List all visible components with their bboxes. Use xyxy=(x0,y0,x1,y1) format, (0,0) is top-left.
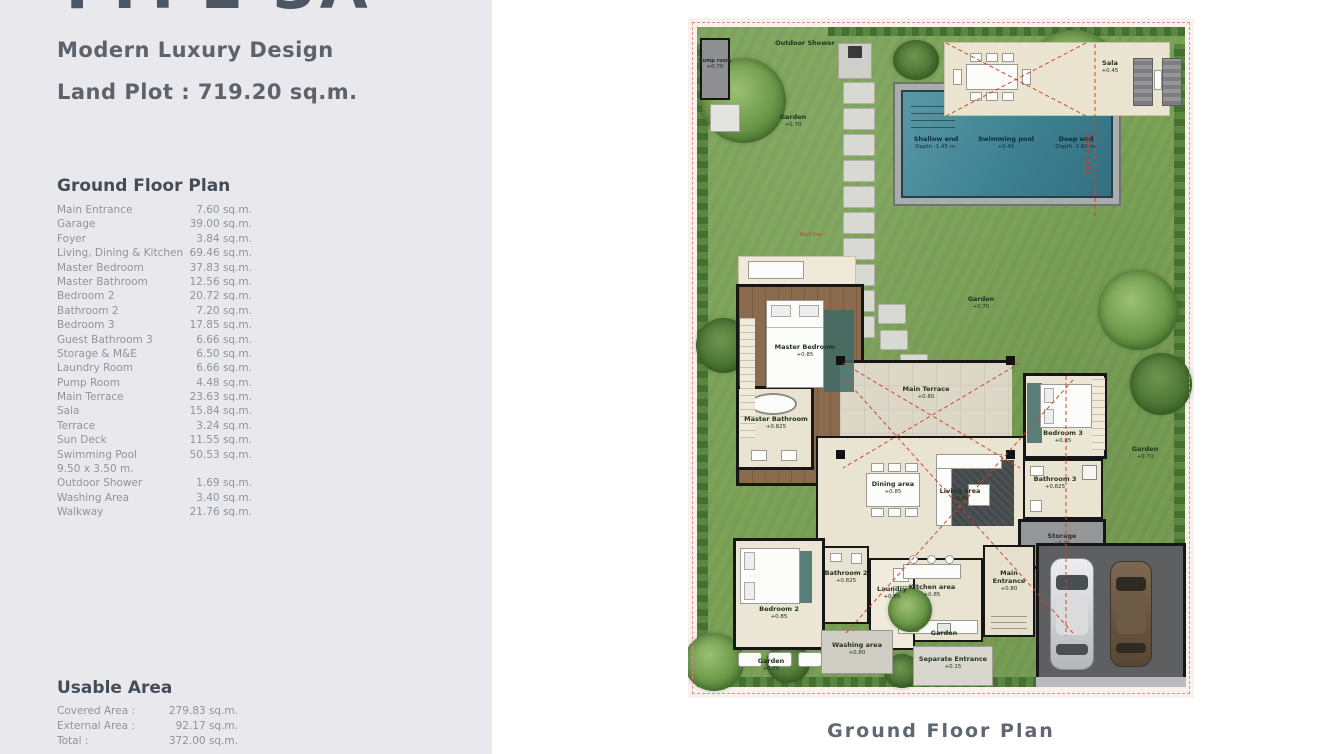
bathtub xyxy=(749,393,797,415)
kitchen-island xyxy=(903,564,961,579)
walkway-stone xyxy=(843,82,875,104)
shower xyxy=(1082,465,1097,480)
walkway-stone xyxy=(880,330,908,350)
chair xyxy=(986,53,998,62)
room-row: Storage & M&E6.50 sq.m. xyxy=(57,347,252,361)
stool xyxy=(909,555,918,564)
land-plot-size: Land Plot : 719.20 sq.m. xyxy=(57,80,358,104)
room-row: Washing Area3.40 sq.m. xyxy=(57,491,252,505)
room-area-list: Main Entrance7.60 sq.m. Garage39.00 sq.m… xyxy=(57,203,252,520)
driveway xyxy=(1036,677,1186,687)
usable-row: Covered Area :279.83 sq.m. xyxy=(57,704,238,719)
sala-dining-table xyxy=(966,64,1018,90)
toilet xyxy=(851,553,862,564)
chair xyxy=(905,463,918,472)
tree xyxy=(1130,353,1192,415)
walkway-stone xyxy=(843,212,875,234)
chair xyxy=(970,92,982,101)
walkway-stone xyxy=(843,160,875,182)
room-row: Swimming Pool50.53 sq.m. xyxy=(57,448,252,462)
usable-row: Total :372.00 sq.m. xyxy=(57,734,238,749)
master-bedroom-rug xyxy=(824,310,854,392)
room-row: Terrace3.24 sq.m. xyxy=(57,419,252,433)
separate-entrance xyxy=(913,646,993,686)
stool xyxy=(927,555,936,564)
type-title: TYPE 3A xyxy=(56,0,372,23)
room-row: Main Entrance7.60 sq.m. xyxy=(57,203,252,217)
room-row: Sun Deck11.55 sq.m. xyxy=(57,433,252,447)
room-row: Bedroom 220.72 sq.m. xyxy=(57,289,252,303)
room-row: Master Bedroom37.83 sq.m. xyxy=(57,261,252,275)
daybed xyxy=(748,261,804,279)
chair xyxy=(1002,53,1014,62)
car-brown xyxy=(1110,561,1152,667)
chair xyxy=(1022,69,1031,85)
wardrobe xyxy=(1092,378,1105,450)
chair xyxy=(970,53,982,62)
column xyxy=(1006,450,1015,459)
courtyard-tree xyxy=(888,588,932,632)
coffee-table xyxy=(968,484,990,506)
range xyxy=(937,623,951,633)
chair xyxy=(905,508,918,517)
tree xyxy=(1098,270,1178,350)
lounger-side-table xyxy=(1154,70,1162,90)
floor-plan-drawing: Pump room+0.70 Outdoor Shower Garden+0.7… xyxy=(688,18,1194,698)
chair xyxy=(871,508,884,517)
chair xyxy=(986,92,998,101)
room-row: 9.50 x 3.50 m. xyxy=(57,462,252,476)
room-row: Laundry Room6.66 sq.m. xyxy=(57,361,252,375)
sink xyxy=(751,450,767,461)
chair xyxy=(888,508,901,517)
column xyxy=(836,450,845,459)
planter xyxy=(798,652,822,667)
sink xyxy=(830,553,842,562)
washing-area xyxy=(821,630,893,674)
room-row: Garage39.00 sq.m. xyxy=(57,217,252,231)
pump-room-pad xyxy=(710,104,740,132)
bathroom-3 xyxy=(1023,459,1103,519)
usable-area-list: Covered Area :279.83 sq.m. External Area… xyxy=(57,704,238,749)
room-row: Walkway21.76 sq.m. xyxy=(57,505,252,519)
page: TYPE 3A Modern Luxury Design Land Plot :… xyxy=(0,0,1342,754)
walk-in-closet xyxy=(740,318,755,438)
toilet xyxy=(1030,500,1042,512)
column xyxy=(1006,356,1015,365)
usable-row: External Area :92.17 sq.m. xyxy=(57,719,238,734)
sun-lounger xyxy=(1162,58,1182,106)
walkway-stone xyxy=(843,108,875,130)
sink xyxy=(1030,466,1044,476)
room-row: Foyer3.84 sq.m. xyxy=(57,232,252,246)
bedroom-3-bed xyxy=(1040,384,1092,428)
dining-table xyxy=(866,473,920,507)
stool xyxy=(945,555,954,564)
room-row: Pump Room4.48 sq.m. xyxy=(57,376,252,390)
chair xyxy=(953,69,962,85)
sofa xyxy=(936,454,1002,469)
column xyxy=(836,356,845,365)
chair xyxy=(871,463,884,472)
room-row: Sala15.84 sq.m. xyxy=(57,404,252,418)
chair xyxy=(1002,92,1014,101)
room-row: Outdoor Shower1.69 sq.m. xyxy=(57,476,252,490)
usable-area-heading: Usable Area xyxy=(57,678,172,698)
bedroom-2-bed xyxy=(740,548,800,604)
room-row: Guest Bathroom 36.66 sq.m. xyxy=(57,333,252,347)
planter xyxy=(738,652,762,667)
pump-room xyxy=(700,38,730,100)
walkway-stone xyxy=(843,186,875,208)
outdoor-shower-head xyxy=(848,46,862,58)
room-row: Main Terrace23.63 sq.m. xyxy=(57,390,252,404)
left-info-panel: TYPE 3A Modern Luxury Design Land Plot :… xyxy=(0,0,492,754)
walkway-stone xyxy=(878,304,906,324)
room-row: Master Bathroom12.56 sq.m. xyxy=(57,275,252,289)
main-entrance xyxy=(983,545,1035,637)
planter xyxy=(768,652,792,667)
room-row: Bedroom 317.85 sq.m. xyxy=(57,318,252,332)
bush xyxy=(893,40,939,80)
room-row: Bathroom 27.20 sq.m. xyxy=(57,304,252,318)
plan-caption: Ground Floor Plan xyxy=(688,720,1194,742)
bathroom-2 xyxy=(823,546,869,624)
ground-floor-plan-heading: Ground Floor Plan xyxy=(57,176,230,196)
car-silver xyxy=(1050,558,1094,670)
room-row: Living, Dining & Kitchen69.46 sq.m. xyxy=(57,246,252,260)
roof-line-label: ROOF LINE xyxy=(1084,133,1090,175)
hedge-top xyxy=(828,27,1185,36)
design-subtitle: Modern Luxury Design xyxy=(57,38,334,62)
sink xyxy=(781,450,797,461)
sun-lounger xyxy=(1133,58,1153,106)
chair xyxy=(888,463,901,472)
walkway-stone xyxy=(843,134,875,156)
master-bed xyxy=(766,300,824,388)
